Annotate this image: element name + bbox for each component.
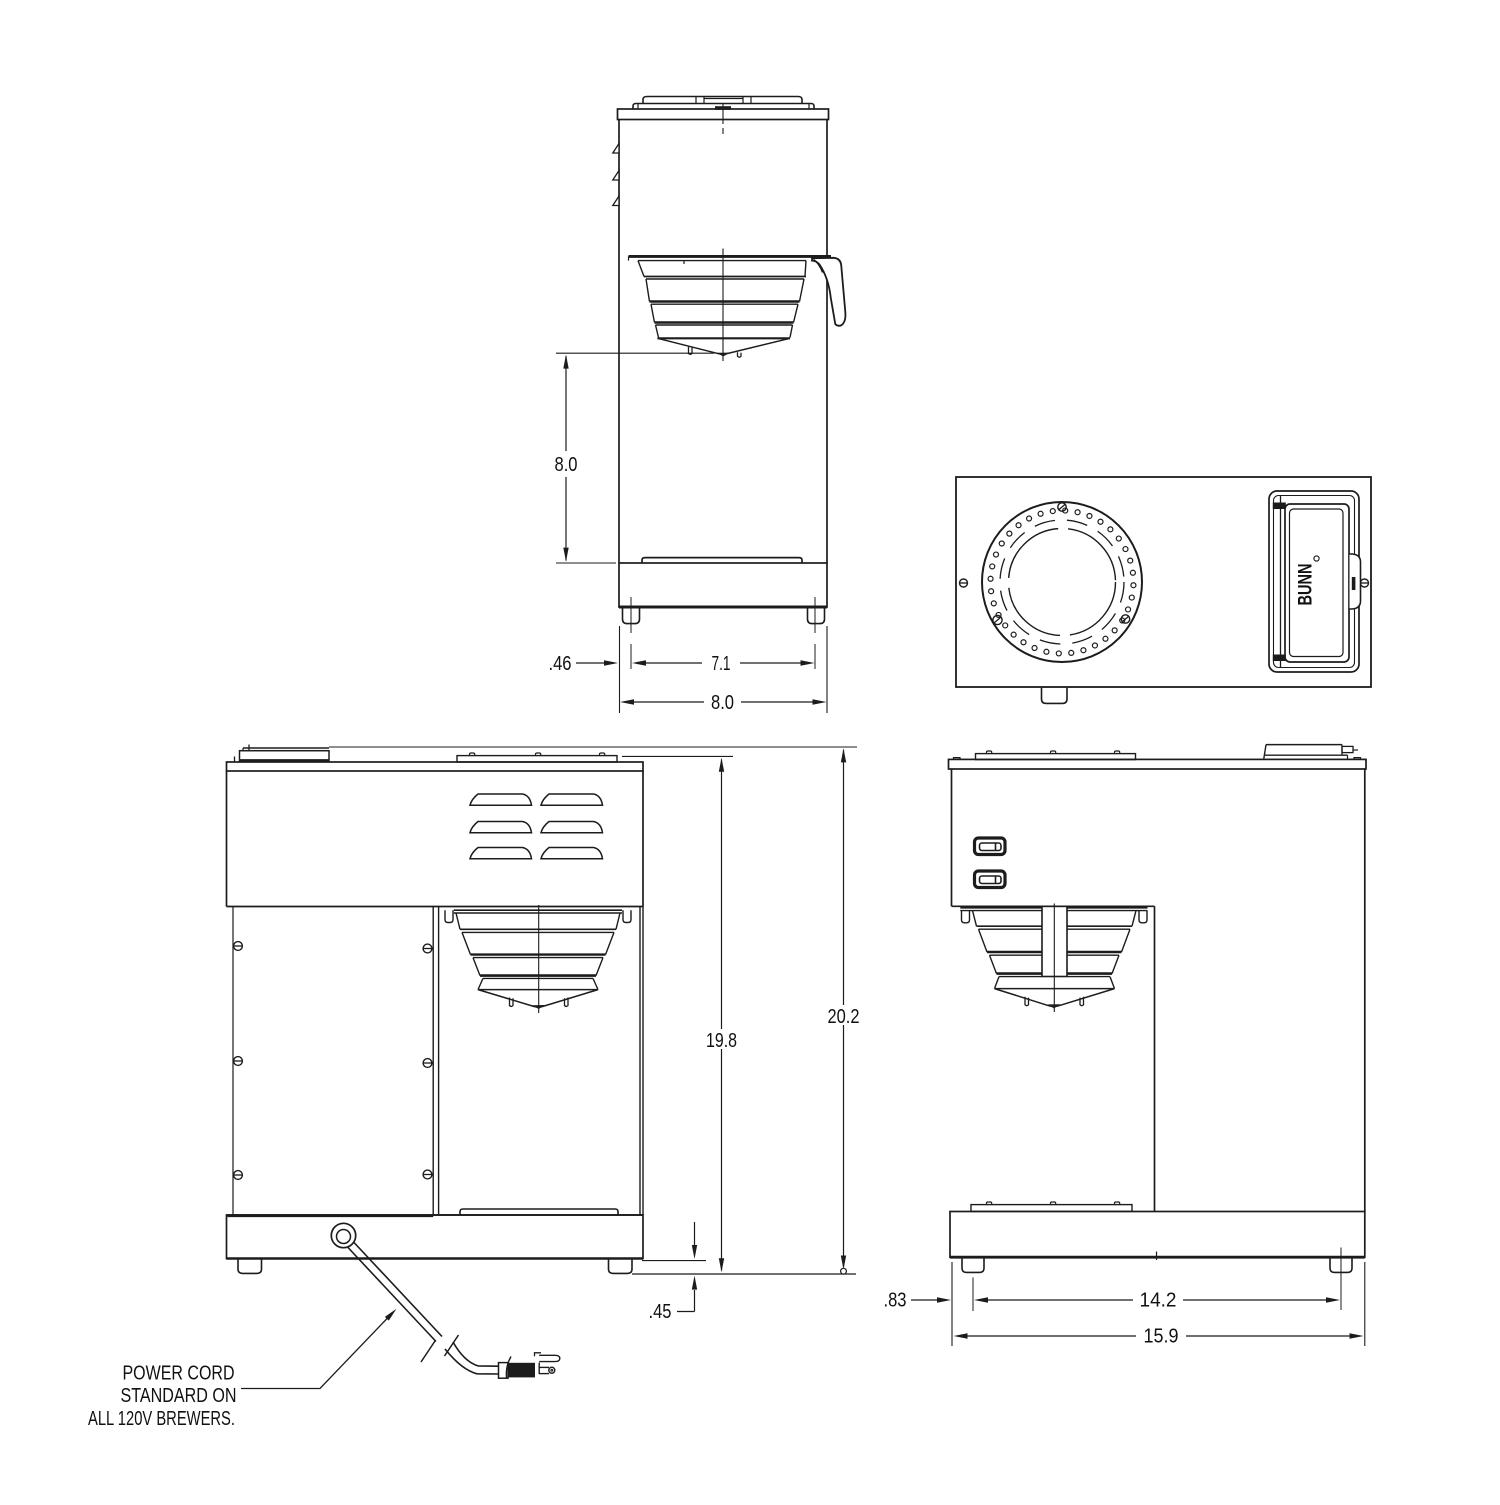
- svg-text:ALL 120V BREWERS.: ALL 120V BREWERS.: [88, 1408, 235, 1430]
- svg-text:8.0: 8.0: [555, 454, 578, 476]
- svg-text:.46: .46: [549, 653, 572, 675]
- svg-text:19.8: 19.8: [706, 1030, 737, 1052]
- svg-text:15.9: 15.9: [1144, 1326, 1179, 1348]
- svg-text:.45: .45: [649, 1301, 672, 1323]
- svg-text:BUNN: BUNN: [1296, 564, 1317, 606]
- svg-text:7.1: 7.1: [712, 653, 731, 675]
- svg-text:STANDARD ON: STANDARD ON: [121, 1385, 237, 1407]
- svg-text:8.0: 8.0: [711, 692, 734, 714]
- svg-text:.83: .83: [884, 1290, 907, 1312]
- svg-text:20.2: 20.2: [828, 1006, 860, 1028]
- svg-text:14.2: 14.2: [1140, 1290, 1177, 1312]
- svg-text:POWER CORD: POWER CORD: [123, 1362, 235, 1384]
